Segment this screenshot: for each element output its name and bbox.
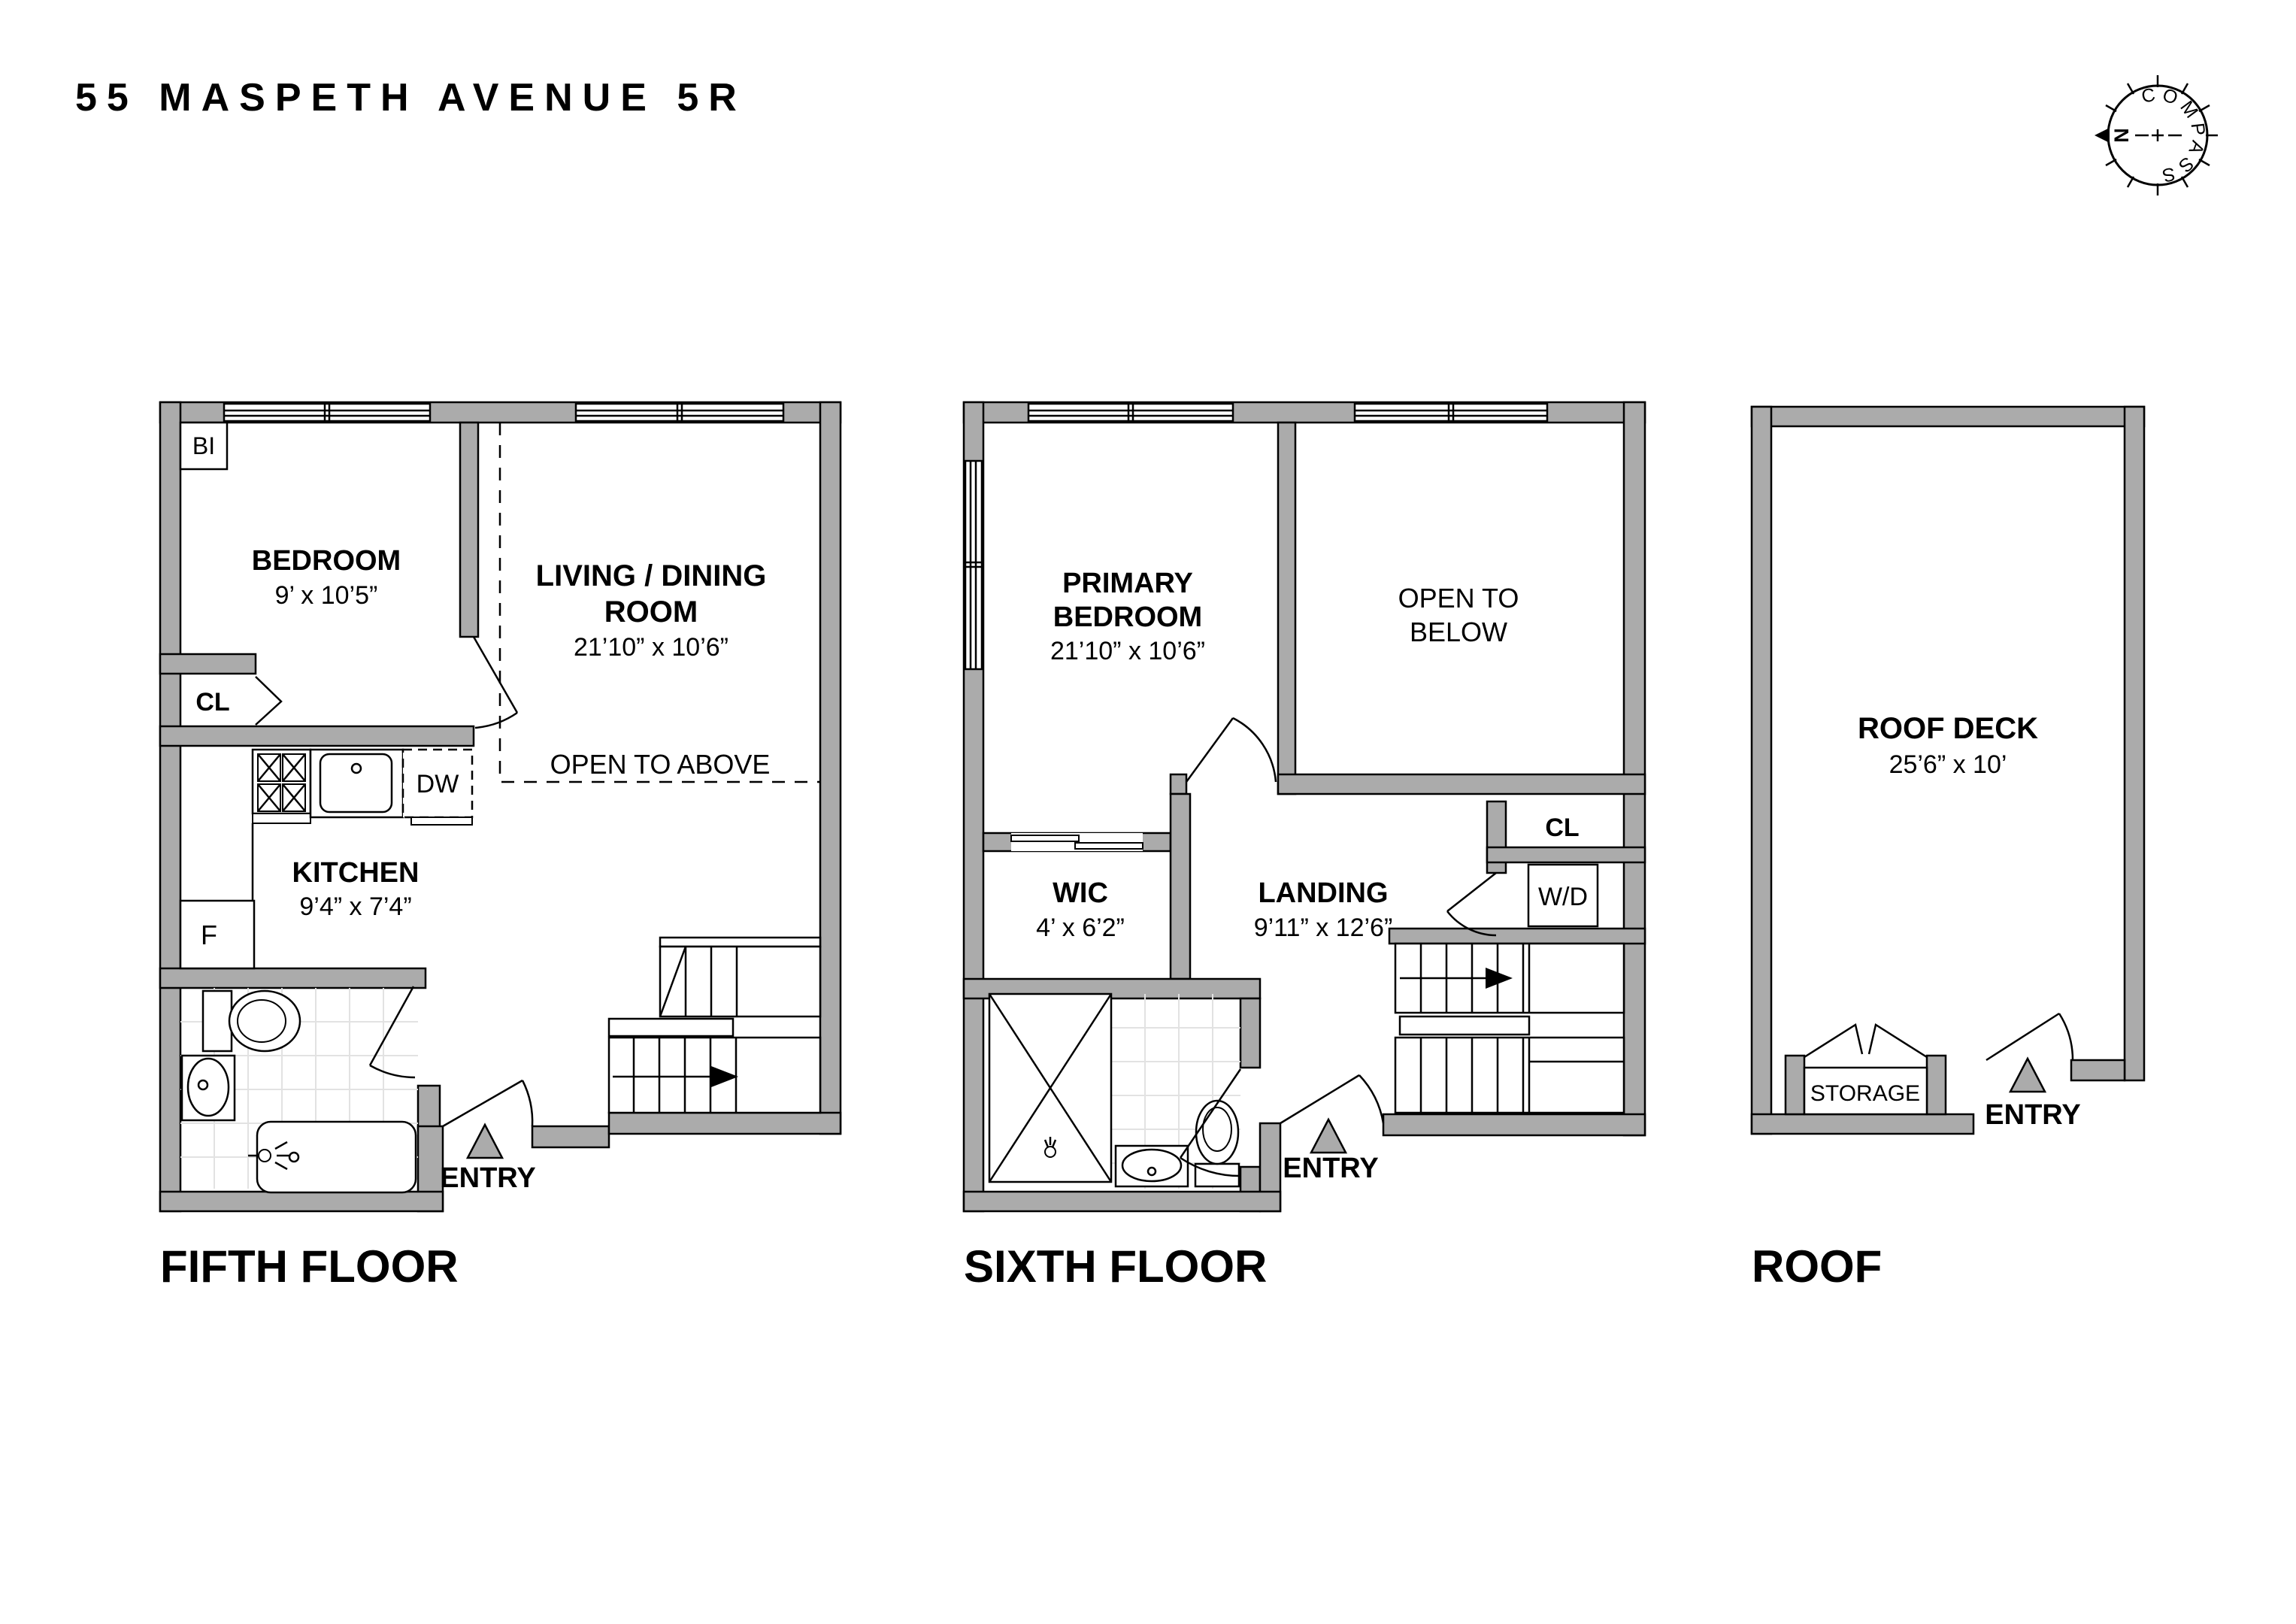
primary-bedroom-label-1: PRIMARY — [1062, 568, 1193, 599]
living-room-label-1: LIVING / DINING — [536, 559, 767, 592]
fifth-bathroom — [180, 986, 418, 1192]
open-to-below-label-2: BELOW — [1410, 617, 1507, 647]
fifth-floor-title: FIFTH FLOOR — [160, 1241, 459, 1292]
fifth-floor-plan: BI DW F — [160, 402, 841, 1292]
floorplan-drawing: 55 MASPETH AVENUE 5R N COMPASS — [0, 0, 2296, 1624]
kitchen-sink-icon — [310, 750, 403, 817]
roof-entry-door-icon — [1986, 1013, 2073, 1060]
compass-north-label: N — [2110, 128, 2133, 143]
kitchen-label: KITCHEN — [292, 857, 420, 889]
stove-icon — [253, 750, 310, 823]
closet-label: CL — [195, 688, 229, 717]
closet-bifold-door-icon — [256, 677, 281, 725]
bedroom-label: BEDROOM — [252, 545, 401, 577]
bi-label: BI — [192, 432, 215, 459]
floorplan-page: 55 MASPETH AVENUE 5R N COMPASS — [0, 0, 2296, 1624]
fridge-label: F — [201, 920, 217, 950]
page-title: 55 MASPETH AVENUE 5R — [75, 76, 747, 120]
bathtub-icon — [248, 1122, 416, 1192]
landing-dims: 9’11” x 12’6” — [1254, 913, 1393, 942]
entry-triangle-icon — [468, 1125, 502, 1158]
primary-bedroom-label-2: BEDROOM — [1053, 601, 1202, 633]
bathroom-sink-icon — [182, 1056, 235, 1120]
washer-dryer-door-icon — [1447, 873, 1496, 935]
washer-dryer-label: W/D — [1538, 883, 1588, 911]
open-to-above-label: OPEN TO ABOVE — [550, 749, 771, 780]
storage-doors-icon — [1804, 1025, 1927, 1057]
sixth-floor-plan: W/D — [964, 402, 1645, 1292]
bathroom-door-icon — [370, 986, 415, 1077]
sixth-floor-title: SIXTH FLOOR — [964, 1241, 1267, 1292]
roof-entry-label: ENTRY — [1985, 1099, 2080, 1131]
kitchen-dims: 9’4” x 7’4” — [299, 892, 411, 921]
wic-dims: 4’ x 6’2” — [1036, 913, 1125, 942]
roof-plan: STORAGE ENTRY ROOF DECK 25’6” x 10’ ROOF — [1752, 407, 2144, 1292]
compass-needle-icon — [2095, 128, 2110, 143]
roof-deck-dims: 25’6” x 10’ — [1889, 750, 2007, 779]
bedroom-dims: 9’ x 10’5” — [275, 581, 378, 610]
living-room-dims: 21’10” x 10’6” — [574, 633, 728, 662]
sixth-stairs-icon — [1395, 944, 1624, 1113]
open-to-below-label-1: OPEN TO — [1398, 583, 1519, 614]
storage-label: STORAGE — [1810, 1081, 1920, 1106]
sixth-entry-label: ENTRY — [1283, 1153, 1378, 1184]
bathroom-sink-icon — [1116, 1146, 1188, 1186]
bedroom-door-icon — [474, 637, 517, 728]
roof-title: ROOF — [1752, 1241, 1882, 1292]
fifth-entry-label: ENTRY — [440, 1162, 535, 1194]
roof-deck-label: ROOF DECK — [1858, 712, 2038, 745]
fifth-entry-door-icon — [443, 1080, 532, 1126]
sixth-bathroom — [989, 994, 1240, 1189]
entry-triangle-icon — [1311, 1120, 1346, 1153]
living-room-label-2: ROOM — [604, 595, 698, 629]
wic-label: WIC — [1053, 877, 1108, 909]
entry-triangle-icon — [2010, 1059, 2045, 1092]
fifth-stairs-icon — [609, 938, 820, 1113]
toilet-icon — [203, 991, 300, 1051]
wic-sliding-door-icon — [1011, 833, 1143, 851]
fridge-icon — [180, 901, 254, 968]
primary-bedroom-dims: 21’10” x 10’6” — [1050, 637, 1205, 665]
shower-icon — [989, 994, 1111, 1182]
landing-label: LANDING — [1258, 877, 1388, 909]
compass-icon: N COMPASS — [2095, 75, 2218, 195]
sixth-closet-label: CL — [1545, 814, 1579, 842]
primary-bedroom-door-icon — [1186, 718, 1276, 782]
dishwasher-label: DW — [416, 770, 459, 798]
sixth-entry-door-icon — [1280, 1075, 1383, 1123]
